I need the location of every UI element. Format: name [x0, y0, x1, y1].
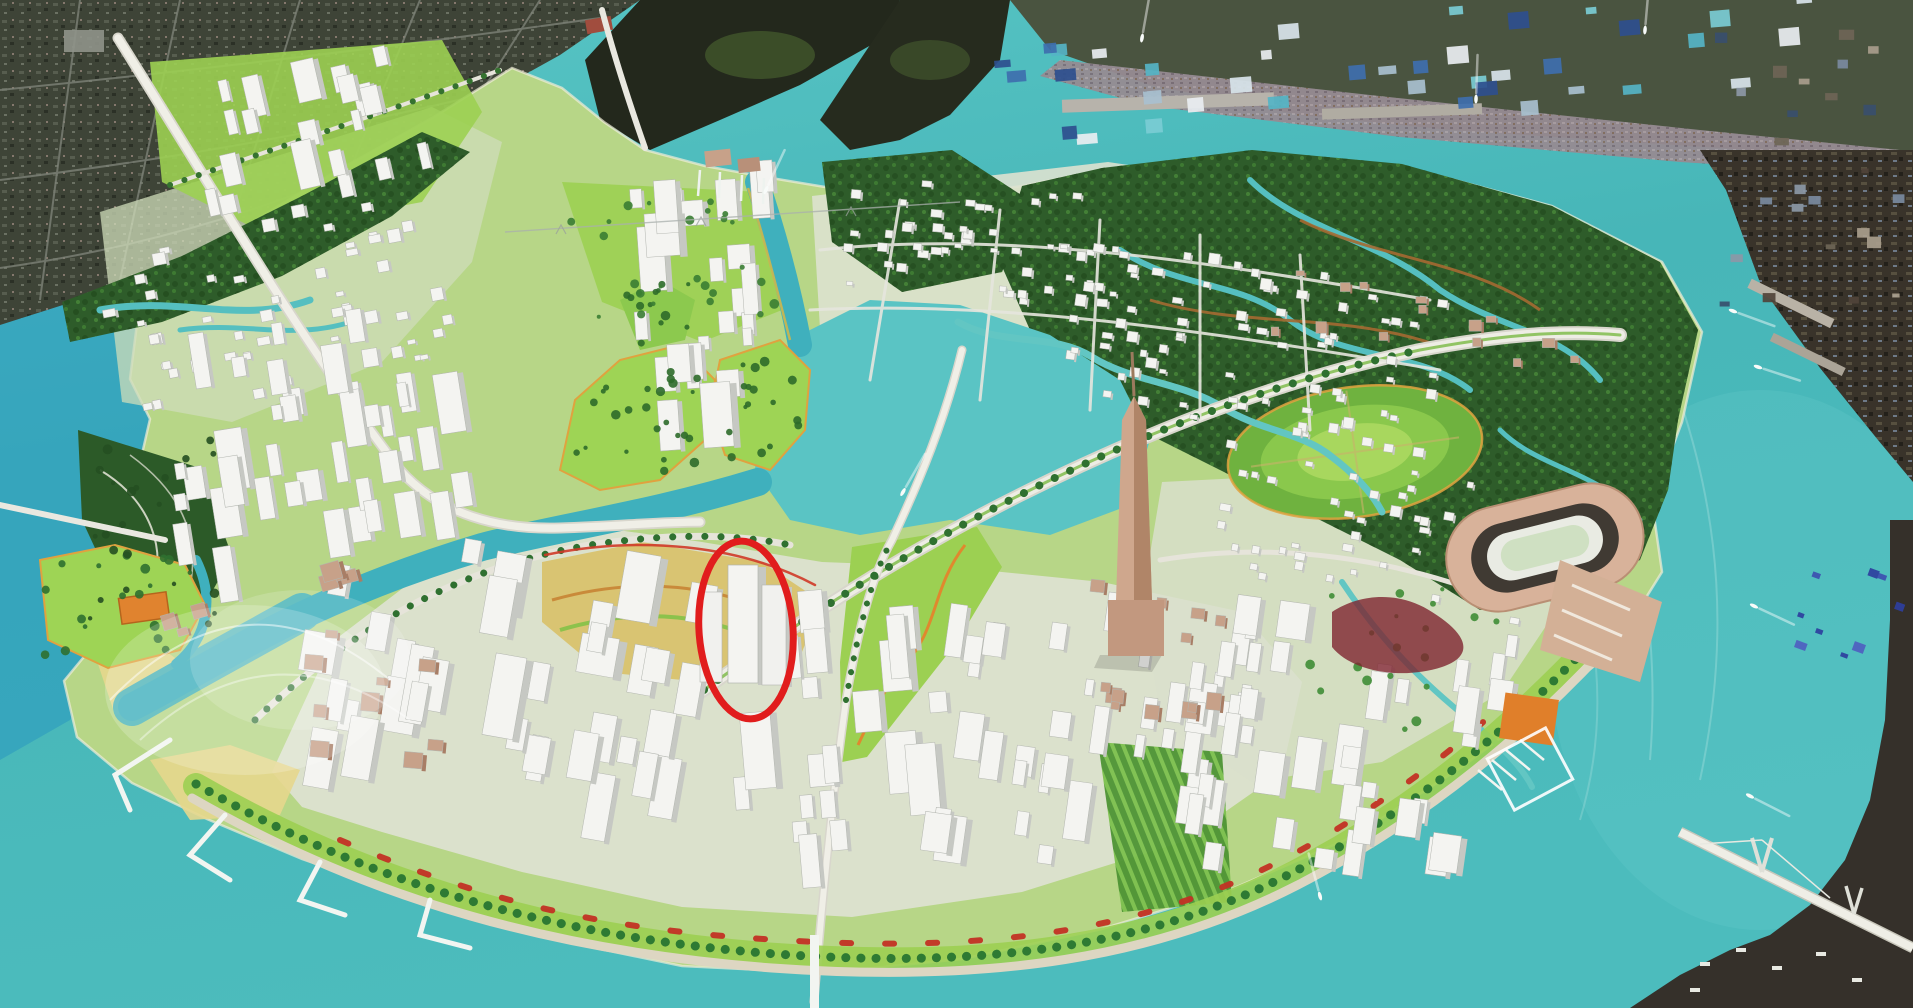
tree [135, 590, 144, 599]
building [1787, 110, 1798, 117]
building [1188, 703, 1197, 713]
building [271, 404, 283, 420]
building [1386, 356, 1396, 365]
building [1110, 292, 1117, 297]
building [846, 281, 853, 285]
building [1097, 299, 1108, 307]
building [1007, 70, 1027, 83]
tree [606, 219, 611, 224]
building [1251, 545, 1260, 554]
tree [788, 376, 797, 385]
tree [757, 278, 765, 286]
tree [123, 587, 130, 594]
building [1276, 308, 1286, 317]
building [1100, 343, 1110, 350]
building [1342, 543, 1353, 552]
building [1022, 267, 1032, 277]
building [1332, 388, 1342, 396]
tree [624, 450, 628, 454]
building-side [1326, 324, 1328, 336]
building [1344, 511, 1353, 518]
building [1145, 118, 1163, 134]
building [653, 180, 679, 234]
tree [690, 458, 700, 468]
tree [83, 624, 88, 629]
building [709, 257, 723, 281]
building [1237, 402, 1247, 409]
building [1276, 600, 1311, 640]
building [999, 286, 1006, 292]
building [1055, 68, 1077, 82]
building [331, 307, 344, 318]
building [1509, 617, 1519, 625]
building [1238, 323, 1249, 331]
building [1073, 193, 1082, 200]
building [928, 691, 947, 713]
building [1047, 244, 1054, 249]
building [1143, 90, 1162, 105]
tree [1387, 673, 1393, 679]
building [1416, 297, 1427, 303]
tree [636, 289, 645, 298]
building [361, 202, 372, 212]
tree [1402, 726, 1408, 732]
building [1238, 470, 1247, 477]
building [1444, 512, 1455, 522]
tree [691, 390, 695, 394]
building [1119, 251, 1129, 258]
building [1076, 251, 1086, 261]
tree [1470, 613, 1478, 621]
building [905, 742, 941, 815]
tree [210, 451, 216, 457]
tree [693, 375, 701, 383]
tree [663, 420, 669, 426]
building [1391, 317, 1401, 325]
building [1410, 321, 1418, 327]
building [1234, 261, 1242, 269]
building [1792, 204, 1804, 212]
building [430, 287, 444, 302]
tree [757, 311, 763, 317]
building [1868, 46, 1879, 54]
building [1262, 398, 1269, 405]
tree [726, 429, 733, 436]
building [1429, 372, 1437, 378]
building [1203, 281, 1210, 287]
tree [706, 298, 713, 305]
tree [1440, 587, 1444, 591]
building-side [1481, 322, 1484, 333]
building [1349, 473, 1357, 480]
building [850, 230, 859, 236]
building [1240, 725, 1254, 744]
building [1407, 485, 1415, 492]
building [1181, 633, 1192, 643]
tree [96, 563, 101, 568]
building [843, 243, 853, 252]
building [1330, 498, 1338, 506]
building [1736, 88, 1745, 96]
building [1381, 318, 1389, 324]
building [1176, 333, 1183, 339]
building [1861, 168, 1868, 173]
building-side [1388, 334, 1390, 342]
tree [636, 302, 644, 310]
building [1420, 517, 1430, 527]
building [1294, 552, 1306, 561]
building-side [1481, 340, 1483, 349]
building [1083, 282, 1094, 292]
building [1486, 316, 1496, 322]
tree [770, 400, 776, 406]
building [1102, 332, 1113, 339]
tree [705, 208, 711, 214]
tree [659, 284, 663, 288]
tree [119, 592, 126, 599]
tree [206, 437, 214, 445]
tree [656, 387, 665, 396]
building [1066, 275, 1073, 281]
building [148, 334, 159, 345]
building [401, 220, 413, 233]
building [941, 247, 948, 253]
building [162, 361, 171, 370]
building [1112, 246, 1119, 252]
building [1369, 490, 1379, 499]
tree [573, 449, 579, 455]
bottom-center-pier [810, 935, 819, 1008]
tree [741, 362, 746, 367]
tree [751, 363, 760, 372]
tree [767, 444, 773, 450]
building [1310, 384, 1321, 394]
building [1857, 228, 1870, 238]
building [433, 328, 444, 338]
building [913, 243, 922, 250]
building [896, 263, 906, 272]
building [804, 628, 829, 674]
building [1267, 476, 1277, 484]
building [1413, 60, 1429, 74]
building [377, 260, 390, 273]
building [387, 228, 402, 243]
building [1340, 283, 1350, 292]
building-side [1304, 273, 1306, 278]
building [1228, 397, 1238, 403]
building [1236, 310, 1247, 321]
building [1368, 294, 1377, 300]
building-side [1367, 284, 1369, 291]
building [1172, 297, 1182, 304]
building [1206, 692, 1222, 711]
building [427, 739, 443, 751]
building [1254, 750, 1286, 796]
tree [686, 435, 694, 443]
building [1249, 563, 1257, 571]
building [364, 404, 381, 427]
building [989, 229, 997, 236]
building [1343, 417, 1354, 429]
building [1060, 244, 1067, 249]
building [260, 309, 274, 322]
tree [727, 453, 735, 461]
building [1731, 254, 1743, 262]
building [1469, 320, 1481, 331]
building [1543, 58, 1562, 75]
building [361, 348, 379, 368]
building [797, 590, 825, 634]
building [1413, 447, 1425, 457]
building [1361, 781, 1376, 798]
building [884, 261, 892, 268]
building [1838, 60, 1848, 69]
building [1292, 427, 1302, 436]
building [1411, 470, 1418, 475]
tree [740, 265, 745, 270]
building-side [1555, 340, 1558, 349]
building [1808, 196, 1820, 204]
building [1062, 126, 1078, 140]
tree [651, 302, 656, 307]
building [1071, 347, 1079, 354]
building [1773, 66, 1787, 78]
building [852, 690, 882, 733]
building [1341, 745, 1361, 769]
building [700, 381, 734, 448]
building [1115, 318, 1126, 328]
tree [148, 583, 153, 588]
building [253, 388, 265, 400]
building [1127, 306, 1136, 313]
building [1390, 505, 1402, 517]
tree [157, 502, 162, 507]
building [1179, 402, 1187, 408]
building [1296, 271, 1304, 276]
building [364, 310, 379, 325]
building [1383, 443, 1393, 452]
building [1688, 33, 1705, 48]
building [1330, 333, 1337, 340]
tree [188, 570, 193, 575]
tree [140, 564, 150, 574]
tree [119, 521, 126, 528]
tree [611, 410, 621, 420]
building [965, 200, 975, 207]
building [1731, 77, 1751, 88]
tree [590, 399, 598, 407]
masterplan-screenshot [0, 0, 1913, 1008]
building [990, 248, 997, 253]
building [1760, 197, 1772, 204]
tree [644, 386, 650, 392]
building-side [1279, 329, 1281, 338]
building [1491, 70, 1511, 82]
building [1449, 6, 1464, 16]
building [1379, 332, 1388, 340]
building [1849, 297, 1859, 304]
building [1137, 396, 1148, 406]
building [1144, 704, 1159, 720]
building [1118, 373, 1126, 381]
tree [1493, 618, 1499, 624]
building [1260, 278, 1272, 291]
tree [661, 311, 671, 321]
building [1794, 185, 1805, 194]
tree [61, 646, 70, 655]
building-side [1496, 318, 1498, 324]
building [1826, 244, 1836, 249]
building [143, 403, 153, 411]
tree [654, 425, 661, 432]
boat-wake [1476, 55, 1477, 93]
tree [77, 615, 86, 624]
building [1076, 133, 1098, 145]
tree [96, 466, 104, 474]
tree [1396, 589, 1405, 598]
tree [624, 201, 633, 210]
building [1044, 286, 1052, 294]
building [1586, 7, 1597, 15]
building [1446, 45, 1469, 64]
building [1208, 253, 1220, 265]
building [1338, 302, 1347, 312]
building [931, 247, 942, 255]
building [1103, 390, 1112, 397]
masterplan-rendering [0, 0, 1913, 1008]
tree [58, 560, 65, 567]
building [1090, 579, 1105, 593]
building [963, 635, 984, 664]
building [1111, 701, 1120, 709]
building [1763, 293, 1776, 302]
tree [601, 389, 606, 394]
building [1863, 105, 1875, 116]
building [1093, 243, 1105, 253]
building [742, 328, 752, 346]
building [1839, 30, 1854, 40]
building [1720, 302, 1730, 307]
building [1619, 19, 1641, 36]
building [739, 711, 776, 790]
tree [182, 455, 189, 462]
building [1127, 264, 1138, 273]
building [1419, 305, 1427, 313]
tree [583, 446, 587, 450]
tree [760, 357, 770, 367]
tree [210, 588, 219, 597]
tree [600, 232, 608, 240]
building [262, 218, 277, 232]
building [1542, 338, 1554, 347]
building [1513, 359, 1520, 367]
building [1215, 615, 1226, 627]
building [1475, 81, 1498, 97]
building [1426, 389, 1437, 400]
building [1126, 331, 1138, 343]
building [1357, 517, 1366, 524]
building [1892, 294, 1899, 298]
building [391, 346, 403, 359]
building [1291, 543, 1299, 549]
building [315, 267, 327, 279]
building [1360, 282, 1368, 289]
building [718, 311, 734, 334]
building [1350, 531, 1360, 540]
building [1381, 410, 1388, 417]
building [1251, 268, 1259, 277]
building [1778, 27, 1800, 47]
building [830, 820, 848, 851]
building [1092, 48, 1107, 58]
building [944, 232, 953, 239]
building [1230, 76, 1253, 93]
tree [597, 315, 601, 319]
building [1362, 437, 1373, 447]
building [1049, 710, 1071, 738]
building [1183, 252, 1191, 260]
building [291, 204, 306, 218]
building [985, 205, 993, 211]
building [1011, 247, 1020, 254]
tree [1430, 601, 1436, 607]
building [1145, 357, 1157, 368]
tree [123, 549, 132, 558]
building [1473, 338, 1481, 347]
building [800, 794, 814, 818]
building [145, 290, 156, 300]
building [932, 223, 943, 232]
building [1709, 9, 1730, 27]
building [134, 274, 145, 285]
building [1622, 84, 1641, 95]
tree [686, 282, 690, 286]
building [442, 314, 453, 325]
building [1799, 79, 1810, 85]
building [1258, 572, 1267, 580]
building [234, 331, 244, 341]
tree [1411, 716, 1421, 726]
building [1715, 33, 1727, 43]
tree [88, 616, 92, 620]
building [207, 274, 215, 282]
tree [701, 281, 710, 290]
building [1328, 423, 1338, 434]
tree [102, 531, 110, 539]
building [1140, 350, 1147, 357]
tree [709, 289, 717, 297]
tree [111, 481, 115, 485]
tree [133, 485, 139, 491]
building [877, 243, 887, 252]
building [1867, 237, 1881, 249]
building [1129, 367, 1140, 378]
tree [1305, 660, 1315, 670]
building [902, 223, 912, 232]
building [1326, 574, 1334, 582]
building [152, 252, 167, 266]
building [1018, 290, 1027, 298]
building [1390, 415, 1398, 421]
tree [1317, 687, 1324, 694]
tree [630, 279, 639, 288]
building [403, 751, 423, 769]
building [168, 368, 178, 378]
building [1187, 97, 1204, 113]
building [822, 745, 840, 784]
building [1379, 562, 1387, 569]
building [1412, 547, 1420, 553]
